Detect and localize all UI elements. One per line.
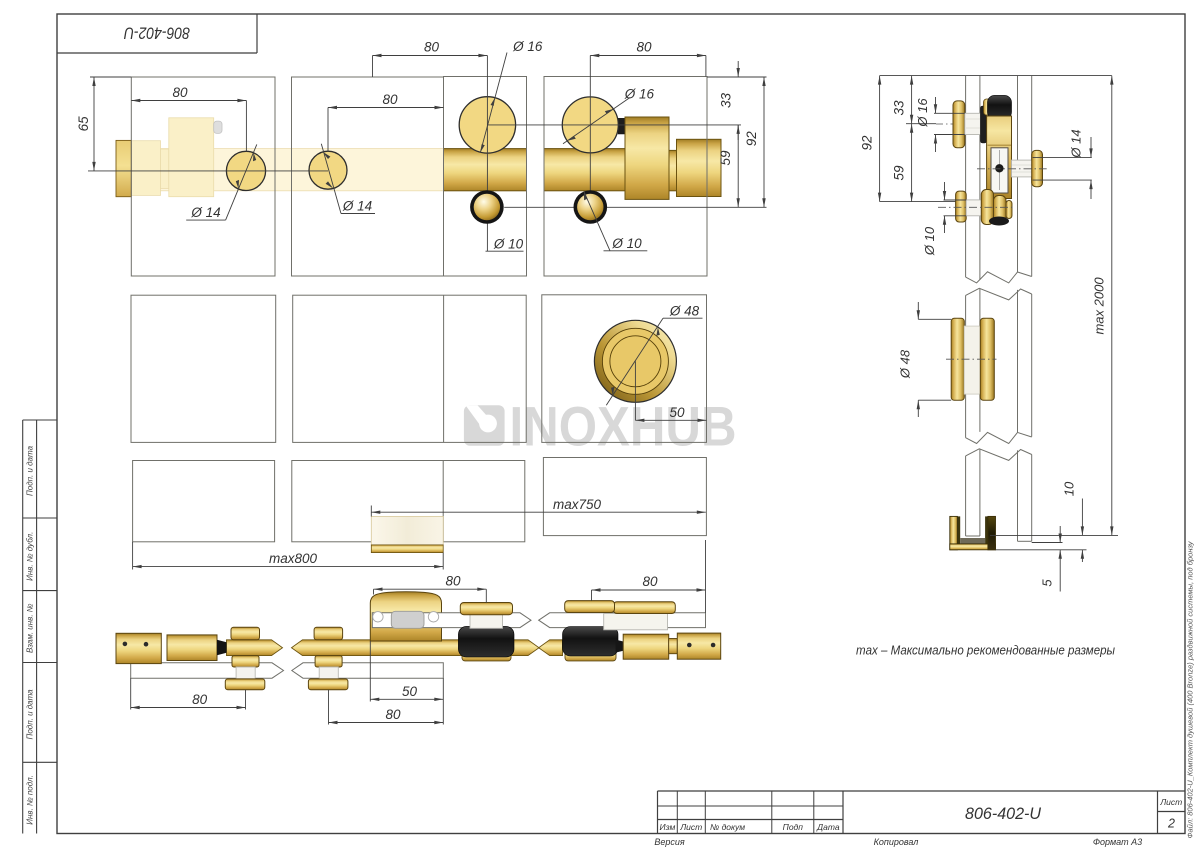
svg-text:10: 10 [1062, 481, 1077, 496]
svg-text:№ докум: № докум [710, 822, 745, 832]
svg-text:Подп. и дата: Подп. и дата [26, 445, 35, 496]
svg-text:2: 2 [1167, 817, 1175, 831]
svg-text:Версия: Версия [654, 837, 685, 847]
svg-text:Лист: Лист [679, 822, 702, 832]
svg-text:65: 65 [76, 116, 91, 132]
svg-text:5: 5 [1040, 579, 1055, 587]
svg-text:Подп. и дата: Подп. и дата [26, 689, 35, 740]
svg-text:92: 92 [860, 135, 875, 151]
svg-text:max – Максимально рекомендован: max – Максимально рекомендованные размер… [856, 643, 1115, 658]
svg-text:Ø 16: Ø 16 [915, 98, 930, 128]
svg-text:59: 59 [718, 150, 733, 166]
svg-text:Подп: Подп [783, 822, 804, 832]
svg-text:80: 80 [385, 707, 401, 722]
svg-text:Дата: Дата [816, 822, 840, 832]
svg-text:Изм: Изм [660, 822, 676, 832]
svg-text:80: 80 [445, 574, 461, 589]
svg-text:Лист: Лист [1159, 797, 1182, 807]
svg-text:33: 33 [892, 100, 907, 116]
svg-text:max750: max750 [553, 497, 602, 512]
svg-text:33: 33 [718, 93, 733, 109]
svg-text:80: 80 [382, 92, 398, 107]
svg-text:806-402-U: 806-402-U [123, 24, 190, 43]
svg-text:Инв. № подл.: Инв. № подл. [26, 775, 35, 825]
svg-text:80: 80 [642, 574, 658, 589]
svg-text:50: 50 [402, 684, 418, 699]
svg-text:Ø 48: Ø 48 [898, 349, 913, 379]
svg-text:Ø 10: Ø 10 [922, 226, 937, 256]
svg-text:Ø 14: Ø 14 [190, 205, 220, 220]
svg-text:Ø 48: Ø 48 [669, 303, 700, 318]
svg-text:Файл: 806-402-U_Комплект душев: Файл: 806-402-U_Комплект душевой (400 Br… [1186, 540, 1195, 838]
svg-text:80: 80 [636, 40, 652, 55]
svg-text:50: 50 [669, 405, 685, 420]
svg-text:Ø 14: Ø 14 [1069, 129, 1084, 158]
svg-text:Копировал: Копировал [874, 837, 919, 847]
svg-text:Ø 16: Ø 16 [624, 87, 655, 102]
svg-text:80: 80 [192, 692, 208, 707]
svg-text:Ø 16: Ø 16 [512, 39, 543, 54]
svg-text:59: 59 [892, 165, 907, 181]
svg-text:max 2000: max 2000 [1092, 277, 1107, 335]
svg-text:Ø 10: Ø 10 [493, 236, 524, 251]
svg-text:Инв. № дубл.: Инв. № дубл. [26, 532, 35, 581]
svg-text:INOXHUB: INOXHUB [510, 395, 737, 458]
svg-text:Ø 14: Ø 14 [342, 199, 372, 214]
svg-text:80: 80 [172, 85, 188, 100]
svg-text:80: 80 [424, 40, 440, 55]
svg-text:806-402-U: 806-402-U [965, 804, 1042, 823]
svg-text:max800: max800 [269, 551, 318, 566]
svg-text:Формат А3: Формат А3 [1093, 837, 1142, 847]
svg-text:Ø 10: Ø 10 [611, 236, 642, 251]
svg-text:Взам. инв. №: Взам. инв. № [26, 603, 35, 653]
svg-text:92: 92 [744, 131, 759, 147]
